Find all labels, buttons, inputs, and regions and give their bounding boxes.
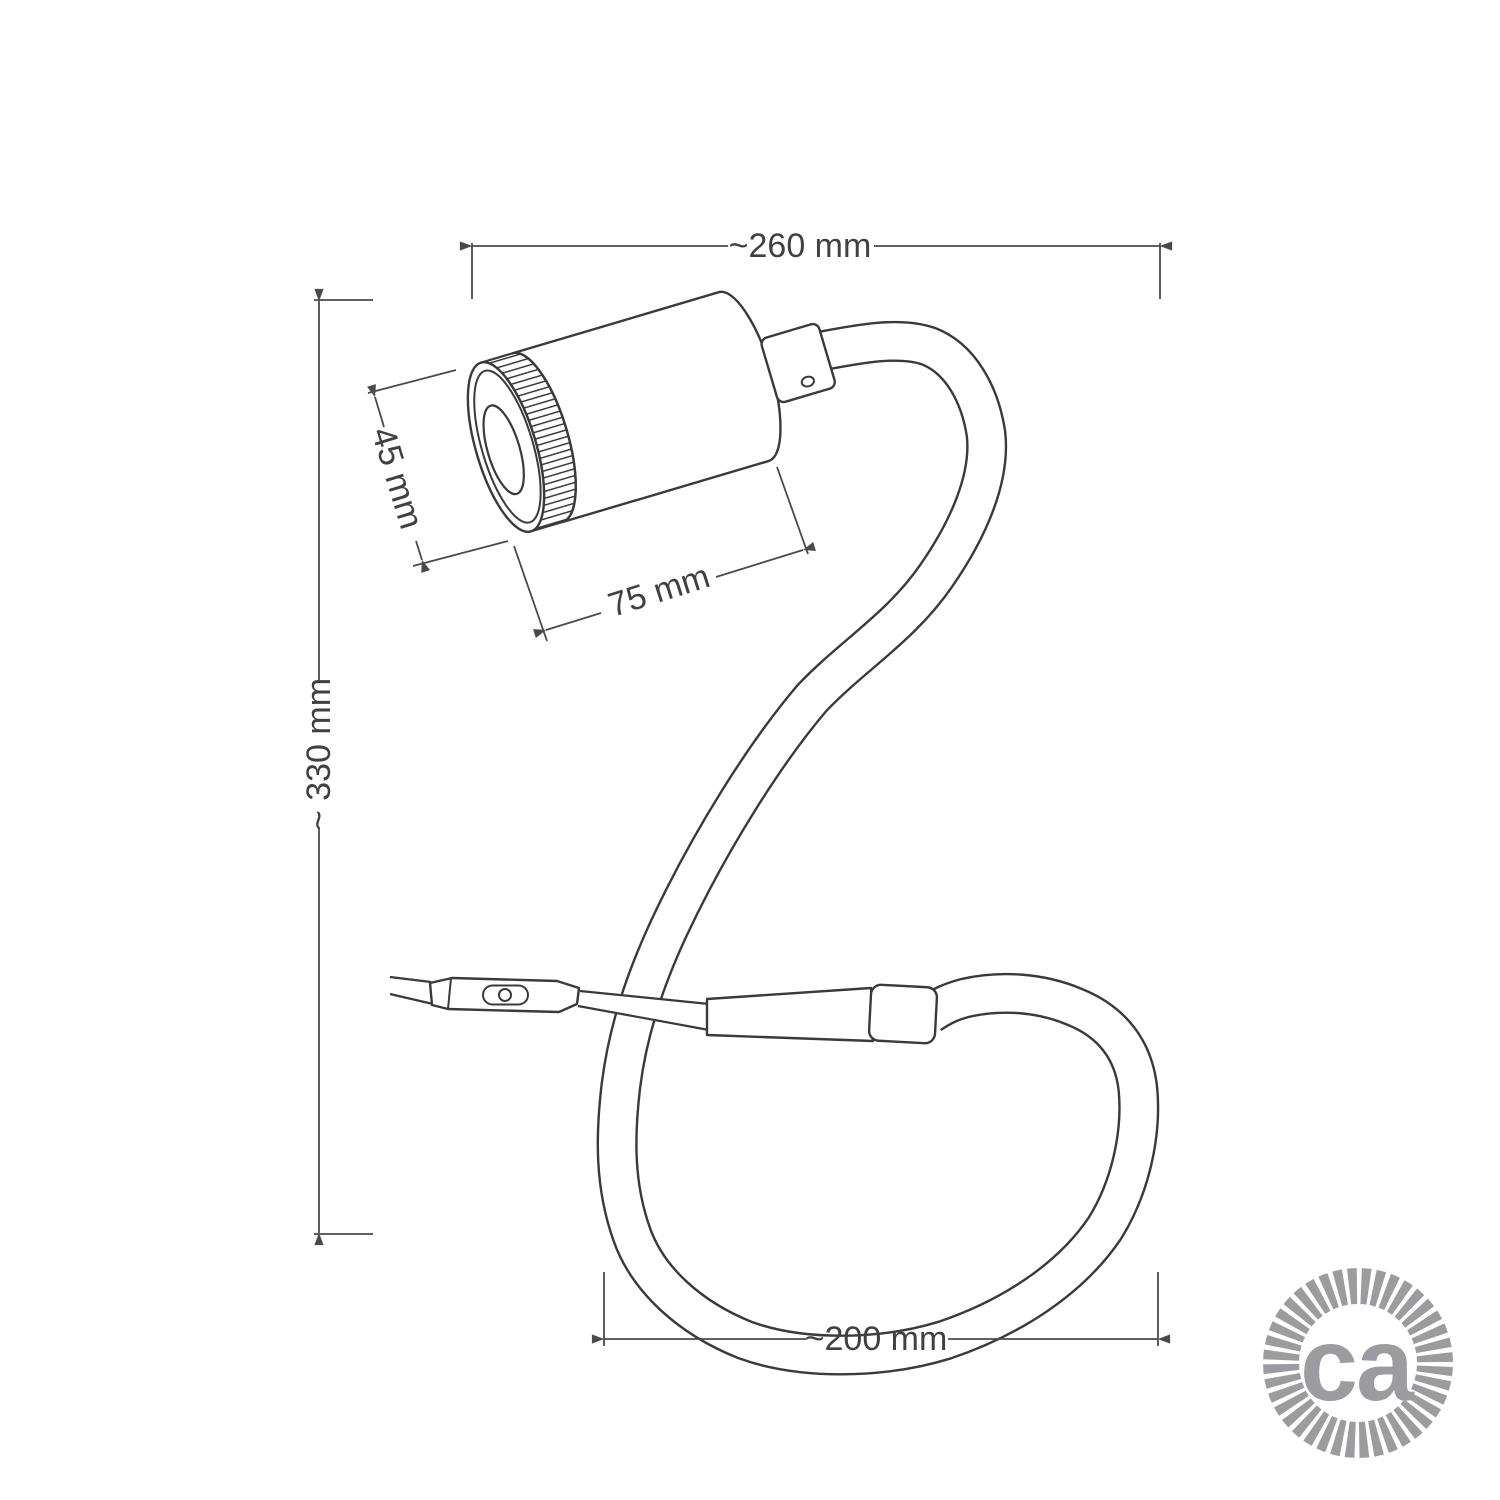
lamp-spotlight-head [452,268,851,540]
dimension-drawing: ~260 mm ~ 330 mm ~200 mm 75 mm 45 mm ca [0,0,1500,1500]
dimension-label-330: ~ 330 mm [300,678,338,830]
dimension-label-75: 75 mm [604,557,715,624]
dimension-label-200: ~200 mm [805,1320,948,1358]
logo-text: ca [1300,1307,1415,1423]
dimension-label-260: ~260 mm [729,227,872,265]
ferrule [869,984,938,1043]
cable-sleeve [707,988,873,1041]
switch-button-dot [499,989,511,1001]
product-dimension-diagram: ~260 mm ~ 330 mm ~200 mm 75 mm 45 mm ca [0,0,1500,1500]
brand-logo: ca [1271,1276,1445,1450]
dimension-label-45: 45 mm [364,423,431,533]
cord-tail [390,977,433,1004]
gooseneck-tube [617,341,1139,1355]
inline-switch [430,978,579,1012]
